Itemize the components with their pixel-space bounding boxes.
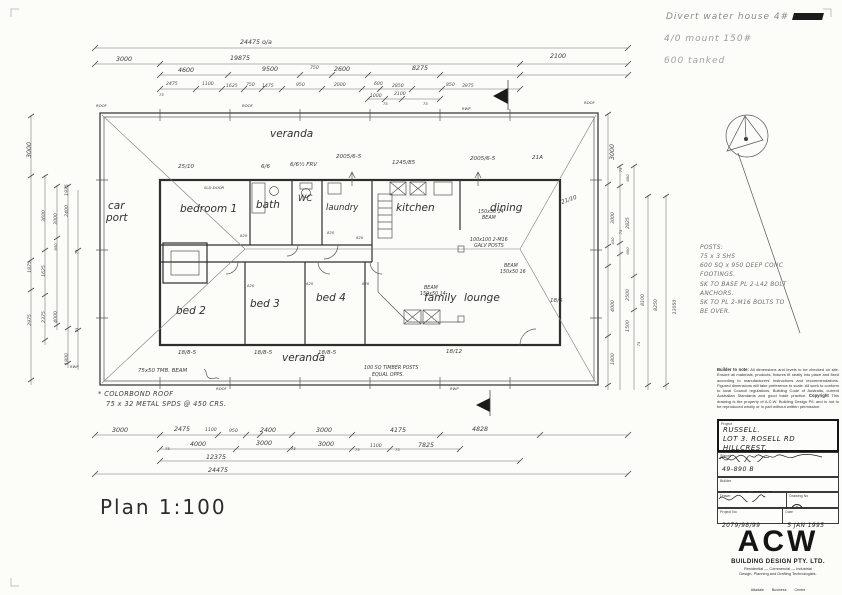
project-no-value: 2079/98/99 — [722, 523, 760, 529]
room-label-bed4: bed 4 — [316, 292, 346, 304]
project-value: HILLCREST. — [723, 444, 834, 453]
project-no-field: Project No 2079/98/99 — [717, 508, 783, 524]
window-code: 18/8-5 — [318, 350, 337, 356]
dim-label: 2825 — [625, 217, 631, 229]
dim-label: 1975 — [64, 184, 70, 196]
beam-note: BEAM — [482, 215, 497, 221]
dim-label: 4000 — [610, 300, 616, 312]
dim-label: 24475 — [208, 467, 228, 474]
spec-line: FOOTINGS. — [700, 271, 840, 280]
window-code: 6/6½ FRV — [290, 161, 318, 168]
building-walls — [96, 109, 602, 389]
beam-note: 150x50 16 — [500, 269, 526, 275]
sliding-door-label: SLD DOOR — [204, 185, 225, 190]
beam-note: BEAM — [424, 285, 439, 291]
dim-label: 3975 — [462, 83, 474, 89]
dim-label: 2100 — [394, 91, 406, 97]
dim-label: 1875 — [27, 261, 33, 273]
window-code: 2005/6-5 — [470, 156, 496, 162]
window-code: 18/8-5 — [254, 350, 273, 356]
signed-field: Signed 49-890 B — [717, 452, 839, 477]
builder-note: Builder to note: All dimensions and leve… — [717, 367, 839, 419]
room-label-bedroom1: bedroom 1 — [180, 203, 237, 215]
pencil-note-text: 600 tanked — [664, 56, 725, 66]
dim-label: 2000 — [334, 82, 346, 88]
roof-note-line: 75 x 32 METAL SPDS @ 450 CRS. — [98, 400, 227, 410]
dim-label: 2475 — [174, 426, 190, 433]
dim-label: 1000 — [370, 93, 382, 99]
room-label-bed2: bed 2 — [176, 305, 206, 317]
company-address: Attadale Business Centre Suite A/2 558 C… — [717, 579, 839, 595]
dim-label: 3000 — [609, 144, 616, 160]
project-value: RUSSELL. — [723, 426, 834, 435]
dim-label: 2400 — [260, 427, 276, 434]
dim-label: 4828 — [472, 426, 488, 433]
company-name: BUILDING DESIGN PTY. LTD. — [717, 558, 839, 565]
dimensions-bottom: 3000 2475 1100 950 2400 3000 4175 4828 4… — [112, 426, 488, 474]
dim-label-75: 75 — [636, 341, 641, 346]
dim-label: 4000 — [190, 441, 206, 448]
pencil-note-text: 4/0 mount 150# — [664, 34, 752, 44]
dim-label: 24475 o/a — [240, 39, 272, 46]
rwp-label: RWP — [450, 386, 459, 391]
dim-label: 1100 — [370, 443, 382, 449]
dim-label: 3000 — [316, 427, 332, 434]
dim-label: 2500 — [625, 289, 631, 301]
dim-label: 2850 — [392, 83, 404, 89]
dim-label: 3000 — [318, 441, 334, 448]
dim-label: 2375 — [41, 311, 47, 323]
spec-line: SK TO PL 2-M16 BOLTS TO — [700, 299, 840, 308]
dim-label: 450 — [610, 237, 615, 245]
window-code: 2005/6-5 — [336, 154, 362, 160]
builder-note-heading: Builder to note: — [717, 367, 749, 372]
room-label-veranda-top: veranda — [270, 128, 313, 140]
roof-label: ROOF — [584, 100, 596, 105]
spec-line: BE OVER. — [700, 308, 840, 317]
dimension-lines — [28, 45, 669, 477]
window-code: 6/6 — [261, 164, 270, 170]
scribbled-out-word — [792, 13, 824, 20]
rwp-label: RWP — [70, 364, 79, 369]
door-code: 820 — [327, 230, 335, 235]
project-no-label: Project No — [720, 510, 737, 514]
company-tagline: Residential — Commercial — Industrial De… — [717, 567, 839, 577]
spec-line: 75 x 3 SHS — [700, 253, 840, 262]
door-code: 820 — [247, 283, 255, 288]
dim-label-75: 75 — [74, 327, 79, 332]
dim-label-75: 75 — [395, 447, 400, 452]
project-value: LOT 3. ROSELL RD — [723, 435, 834, 444]
dim-label: 8100 — [640, 294, 646, 306]
roof-note-line: * COLORBOND ROOF — [98, 390, 227, 400]
window-code: 25/10 — [178, 164, 195, 170]
dim-label: 3000 — [116, 56, 132, 63]
posts-note: 100x100 2-M16 — [470, 237, 508, 243]
dim-label-75: 75 — [159, 92, 164, 97]
tagline-line: Design, Planning and Drafting Technologi… — [717, 572, 839, 577]
builder-label: Builder — [720, 479, 731, 483]
room-label-bath: bath — [256, 199, 280, 211]
dim-label: 600 — [625, 247, 630, 255]
spec-line: SK TO BASE PL 2-L42 BOLT — [700, 281, 840, 290]
dim-label: 750 — [310, 65, 319, 71]
dim-label: 950 — [53, 243, 58, 251]
dim-label: 950 — [229, 428, 238, 434]
signature-squiggle — [718, 453, 826, 462]
dim-label: 2600 — [334, 66, 350, 73]
room-label-laundry: laundry — [326, 203, 359, 213]
dim-label: 2975 — [27, 314, 33, 326]
dim-label: 8250 — [653, 299, 659, 311]
posts-note: GALV POSTS — [474, 243, 504, 249]
date-value: 5 JAN 1995 — [787, 523, 824, 529]
window-code: 21/10 — [561, 195, 579, 206]
dim-label: 3600 — [41, 210, 47, 222]
dim-label: 13050 — [672, 300, 678, 315]
dim-label-75: 75 — [355, 447, 360, 452]
drawn-field: Drawn — [717, 492, 787, 508]
spec-line: ANCHORS. — [700, 290, 840, 299]
dim-label: 850 — [446, 82, 455, 88]
signature-squiggle — [718, 493, 766, 502]
dim-label-75: 75 — [74, 249, 79, 254]
dim-label: 3000 — [112, 427, 128, 434]
dim-label: 3000 — [610, 212, 616, 224]
dim-label-75: 75 — [618, 229, 623, 234]
date-label: Date — [785, 510, 793, 514]
room-label-carport: port — [105, 212, 128, 224]
drawing-no-label: Drawing No — [789, 494, 808, 498]
window-code: 18/6 — [550, 298, 563, 304]
dim-label: 600 — [625, 174, 630, 182]
spec-heading: POSTS: — [700, 244, 840, 253]
dim-label: 19875 — [230, 55, 250, 62]
dim-label: 750 — [246, 82, 255, 88]
dim-label: 4600 — [178, 67, 194, 74]
projectno-date-row: Project No 2079/98/99 Date 5 JAN 1995 — [717, 508, 839, 524]
dim-label: 7825 — [418, 442, 434, 449]
posts-note: EQUAL OPPS. — [372, 372, 404, 378]
company-logo-block: ACW BUILDING DESIGN PTY. LTD. Residentia… — [717, 524, 839, 595]
dim-label-75: 75 — [165, 446, 170, 451]
dimensions-left: 3000 1875 2975 3600 1625 2375 3000 950 4… — [26, 142, 79, 369]
window-code: 18/8-5 — [178, 350, 197, 356]
dim-label: 4000 — [53, 311, 59, 323]
door-code: 820 — [356, 235, 364, 240]
dim-label: 4175 — [390, 427, 406, 434]
door-code: 820 — [362, 281, 370, 286]
room-label-wc: WC — [298, 194, 312, 204]
roof-specification-note: * COLORBOND ROOF 75 x 32 METAL SPDS @ 45… — [98, 390, 227, 410]
dim-label: 1100 — [202, 81, 214, 87]
drawing-sheet: 24475 o/a 3000 19875 2100 4600 9500 750 … — [0, 0, 842, 595]
dim-label-75: 75 — [291, 446, 296, 451]
dim-label: 2400 — [64, 205, 70, 217]
dim-label: 1625 — [226, 83, 238, 89]
address-line: Attadale Business Centre — [717, 588, 839, 593]
dim-label: 12375 — [206, 454, 226, 461]
title-block: Builder to note: All dimensions and leve… — [717, 367, 839, 595]
dim-label: 3000 — [53, 213, 59, 225]
dim-label-75: 75 — [423, 101, 428, 106]
dim-label: 950 — [296, 82, 305, 88]
dim-label: 3000 — [26, 142, 33, 158]
dim-label: 8275 — [412, 65, 428, 72]
room-label-kitchen: kitchen — [396, 202, 435, 214]
roof-label: ROOF — [242, 103, 254, 108]
company-logo: ACW — [717, 527, 839, 557]
pencil-note-line1: Divert water house 4# — [666, 12, 823, 22]
posts-note: 100 SQ TIMBER POSTS — [364, 365, 418, 371]
opening-codes: 25/10 6/6 6/6½ FRV 2005/6-5 1245/85 2005… — [178, 154, 578, 356]
beam-note: 150x50 14 — [420, 291, 446, 297]
dim-label: 1475 — [262, 83, 274, 89]
door-code: 820 — [306, 281, 314, 286]
dim-label-75: 75 — [618, 167, 623, 172]
dim-label: 1100 — [205, 427, 217, 433]
post-specification-notes: POSTS: 75 x 3 SHS 600 SQ x 950 DEEP CONC… — [700, 244, 840, 317]
dim-label: 9500 — [262, 66, 278, 73]
copyright-heading: Copyright — [809, 393, 829, 398]
pencil-note-line2: 4/0 mount 150# — [664, 34, 752, 44]
dim-label: 2100 — [550, 53, 566, 60]
room-label-bed3: bed 3 — [250, 298, 280, 310]
signed-value: 49-890 B — [722, 466, 754, 473]
pencil-note-text: Divert water house 4# — [666, 12, 789, 22]
rwp-label: RWP — [462, 106, 471, 111]
window-code: 18/12 — [446, 349, 463, 355]
roof-label: ROOF — [96, 103, 108, 108]
window-code: 21A — [532, 155, 543, 161]
door-code: 820 — [240, 233, 248, 238]
spec-line: 600 SQ x 950 DEEP CONC — [700, 262, 840, 271]
date-field: Date 5 JAN 1995 — [783, 508, 839, 524]
beam-note: 150x50 14 — [478, 209, 504, 215]
drawing-no-field: Drawing No 2 — [787, 492, 839, 508]
dim-label: 1500 — [625, 320, 631, 332]
dim-label: 1800 — [610, 353, 616, 365]
project-field: Project RUSSELL. LOT 3. ROSELL RD HILLCR… — [717, 419, 839, 452]
project-label: Project — [721, 422, 732, 426]
pencil-note-line3: 600 tanked — [664, 56, 725, 66]
builder-field: Builder SCOTT FERG. — [717, 477, 839, 492]
room-label-carport: car — [108, 200, 125, 212]
plan-title: Plan 1:100 — [100, 495, 227, 519]
room-label-lounge: lounge — [464, 292, 500, 304]
dim-label: 3000 — [256, 440, 272, 447]
dim-label: 600 — [374, 81, 383, 87]
window-code: 1245/85 — [392, 160, 416, 166]
dim-label-75: 75 — [383, 101, 388, 106]
beam-note: BEAM — [504, 263, 519, 269]
dim-label: 1625 — [41, 265, 47, 277]
dim-label: 2475 — [166, 81, 178, 87]
beam-note: 75x50 TMB. BEAM — [138, 368, 187, 374]
drawn-drawingno-row: Drawn Drawing No 2 — [717, 492, 839, 508]
